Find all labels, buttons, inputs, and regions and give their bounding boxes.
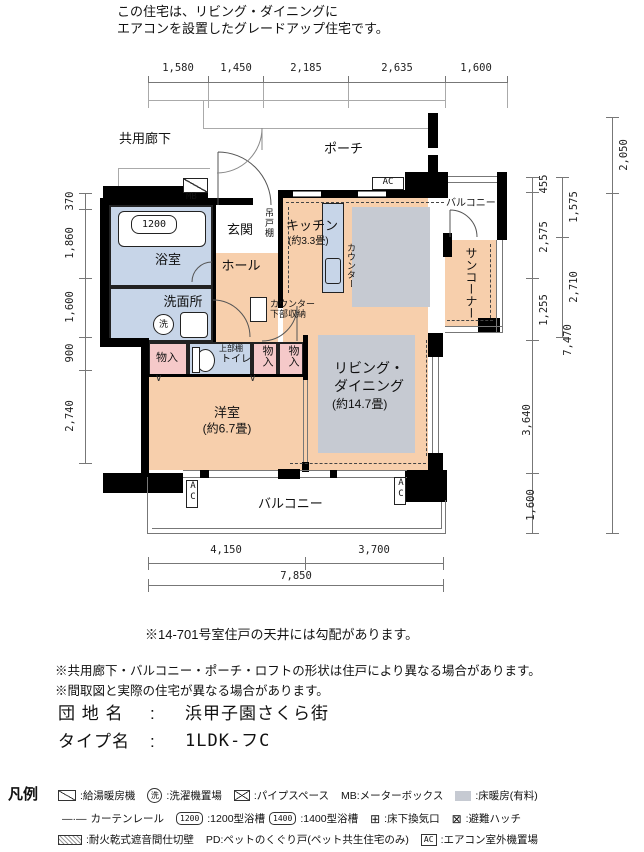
entrance-label: 玄関 (227, 222, 253, 238)
legend-row-3: :耐火乾式遮音間仕切壁 PD:ペットのくぐり戸(ペット共生住宅のみ) AC:エア… (58, 832, 538, 847)
balcony-rail (147, 533, 446, 534)
washer-place-icon: 洗 (147, 788, 162, 803)
western-size: (約6.7畳) (203, 422, 252, 437)
fold-mark: ∨ (249, 373, 256, 386)
closet1-label: 物入 (156, 352, 178, 366)
dim-right-mid-2: 7,470 (562, 324, 574, 356)
tick (606, 533, 619, 534)
legend-tub-1200: :1200型浴槽 (207, 811, 265, 826)
curtain-rail (490, 244, 491, 318)
dim-right-inner-2: 1,255 (538, 294, 550, 326)
meter-box (183, 178, 208, 193)
living-size: (約14.7畳) (332, 397, 387, 412)
partition-line (303, 380, 304, 466)
wall (497, 172, 507, 240)
wall (148, 374, 304, 377)
tub-1200-icon: 1200 (176, 812, 203, 825)
closet2-label: 物入 (259, 345, 275, 367)
ext-line (348, 83, 349, 108)
ext-line (263, 83, 264, 108)
ceiling-note: ※14-701号室住戸の天井には勾配があります。 (145, 624, 418, 643)
curtain-rail (447, 320, 493, 321)
balcony-rail (152, 528, 442, 529)
closet3-label: 物入 (285, 345, 301, 367)
curtain-rail (286, 202, 444, 203)
window-line (448, 176, 497, 177)
dim-line-bottom-1 (148, 563, 443, 564)
wall-gap (428, 148, 438, 155)
kitchen-sink (325, 258, 341, 284)
legend-row-2: —·—カーテンレール 1200:1200型浴槽 1400:1400型浴槽 ⊞:床… (62, 811, 521, 826)
counter-storage-box (250, 297, 267, 322)
ac-box-top: AC (372, 177, 404, 190)
ac-outdoor-icon: AC (421, 834, 437, 846)
legend-row-1: :給湯暖房機 洗:洗濯機置場 :パイプスペース MB:メーターボックス :床暖房… (58, 788, 538, 803)
note-line1: ※共用廊下・バルコニー・ポーチ・ロフトの形状は住戸により異なる場合があります。 (55, 660, 541, 679)
bathtub-size: 1200 (131, 215, 177, 234)
dim-left-3: 900 (64, 344, 76, 363)
vanity (180, 312, 208, 338)
dim-left-1: 1,860 (64, 227, 76, 259)
dim-right-inner-4: 1,600 (525, 489, 537, 521)
type-name-value: 1LDK-フC (185, 731, 270, 752)
tub-1400-icon: 1400 (269, 812, 296, 825)
note-line2: ※間取図と実際の住宅が異なる場合があります。 (55, 680, 329, 699)
window-mullion (330, 470, 337, 478)
ac-box-right: AC (394, 477, 406, 505)
dim-line-right-outer (612, 117, 613, 533)
corridor-outline (148, 100, 445, 101)
living-line1: リビング・ (334, 360, 404, 378)
window-line (445, 326, 503, 327)
window-line (432, 357, 433, 453)
ac-label: AC (395, 478, 405, 500)
floor-heating-panel-1 (352, 207, 430, 307)
wall (428, 333, 443, 357)
legend-washer: :洗濯機置場 (166, 788, 221, 803)
partition-line (307, 380, 308, 466)
legend-firewall: :耐火乾式遮音間仕切壁 (86, 832, 194, 847)
dim-right-inner-3: 3,640 (521, 404, 533, 436)
ac-box-left: AC (186, 480, 198, 508)
dim-bottom-0: 4,150 (210, 544, 242, 556)
dim-top-4: 1,600 (460, 62, 492, 74)
wall (103, 473, 183, 493)
dim-line-left (85, 193, 86, 463)
washer-icon: 洗 (153, 314, 174, 335)
estate-name-label: 団 地 名 (58, 703, 123, 724)
ext-line (148, 83, 149, 108)
hall-label: ホール (221, 258, 260, 274)
curtain-rail (426, 340, 427, 456)
tick (556, 237, 569, 238)
tick (79, 463, 92, 464)
escape-hatch-icon: ⊠ (452, 812, 462, 826)
legend-pd: PD:ペットのくぐり戸(ペット共生住宅のみ) (206, 832, 409, 847)
window-line (496, 240, 497, 332)
dim-right-outer-0: 2,050 (618, 139, 630, 171)
balcony-bottom-label: バルコニー (258, 496, 323, 512)
wall (141, 342, 149, 476)
legend-vent: :床下換気口 (384, 811, 439, 826)
pipe-space-icon (234, 790, 250, 801)
toilet-tank (192, 347, 200, 373)
tick (443, 579, 444, 592)
legend-hatch: :避難ハッチ (466, 811, 521, 826)
dim-top-3: 2,635 (381, 62, 413, 74)
legend-curtain-rail: カーテンレール (91, 811, 165, 826)
hanging-cabinet-label: 吊戸棚 (263, 208, 276, 238)
curtain-rail (290, 463, 426, 464)
dim-line-bottom-2 (148, 585, 443, 586)
window-mullion (278, 469, 300, 479)
kitchen-label: キッチン (286, 218, 338, 234)
ext-line (445, 83, 446, 108)
western-label: 洋室 (214, 405, 240, 421)
wall (213, 205, 216, 342)
washroom-label: 洗面所 (163, 294, 202, 310)
balcony-rail (445, 500, 446, 534)
bathroom-label: 浴室 (155, 252, 181, 268)
wall (428, 113, 438, 175)
estate-name-sep: : (150, 703, 156, 724)
tick (148, 579, 149, 592)
underfloor-vent-icon: ⊞ (370, 812, 380, 826)
window-line (438, 357, 439, 453)
corridor-edge (118, 168, 210, 169)
floor-heating-icon (455, 791, 471, 801)
dim-top-1: 1,450 (220, 62, 252, 74)
window-line (448, 182, 497, 183)
wall (208, 198, 253, 205)
tick (526, 340, 539, 341)
window-line (445, 332, 503, 333)
tick (79, 370, 92, 371)
balcony-rail (147, 477, 148, 534)
legend-mb: MB:メーターボックス (341, 788, 443, 803)
type-name-sep: : (150, 731, 156, 752)
corridor-label: 共用廊下 (119, 131, 171, 147)
header-line2: エアコンを設置したグレードアップ住宅です。 (117, 21, 389, 37)
dim-right-inner-1: 2,575 (538, 221, 550, 253)
estate-name-value: 浜甲子園さくら街 (185, 703, 329, 724)
legend-tub-1400: :1400型浴槽 (300, 811, 358, 826)
tick (526, 278, 539, 279)
dim-bottom-1: 3,700 (358, 544, 390, 556)
dim-bottom-total: 7,850 (280, 570, 312, 582)
tick (606, 117, 619, 118)
kitchen-size: (約3.3畳) (288, 236, 329, 249)
balcony-upper-label: バルコニー (446, 198, 496, 211)
fold-mark: ∨ (155, 373, 162, 386)
toilet-shelf-label: 上部棚 (219, 344, 243, 354)
kitchen-window (358, 191, 386, 197)
firewall-icon (58, 835, 82, 845)
floorplan-page: この住宅は、リビング・ダイニングに エアコンを設置したグレードアップ住宅です。 … (0, 0, 644, 852)
tick (148, 557, 149, 570)
dim-line-right-mid (562, 177, 563, 337)
dim-right-inner-0: 455 (538, 175, 550, 194)
wall (278, 198, 283, 308)
mb-label: MB (186, 192, 197, 203)
dim-top-0: 1,580 (162, 62, 194, 74)
dim-left-2: 1,600 (64, 291, 76, 323)
tick (79, 278, 92, 279)
wall (100, 198, 109, 342)
legend-pipe-space: :パイプスペース (254, 788, 329, 803)
ac-label: AC (187, 481, 197, 503)
wall (405, 172, 448, 192)
porch-label: ポーチ (324, 141, 363, 157)
tick (443, 557, 444, 570)
sun-corner-label: サンコーナー (463, 247, 480, 319)
dim-right-mid-1: 2,710 (568, 271, 580, 303)
corridor-edge (118, 168, 119, 186)
header-line1: この住宅は、リビング・ダイニングに (117, 4, 338, 20)
wall (303, 335, 308, 380)
counter-storage-label: カウンター下部収納 (270, 299, 318, 320)
legend-floor-heating: :床暖房(有料) (475, 788, 537, 803)
porch-outline-left (203, 100, 204, 128)
balcony-rail (441, 502, 442, 529)
dim-top-2: 2,185 (290, 62, 322, 74)
dim-line-right-inner (532, 177, 533, 533)
legend-ac: :エアコン室外機置場 (441, 832, 538, 847)
dim-left-0: 370 (64, 192, 76, 211)
tick (79, 209, 92, 210)
type-name-label: タイプ名 (58, 731, 130, 752)
wall (405, 470, 447, 502)
kitchen-window (293, 191, 321, 197)
porch-outline-top (203, 128, 429, 129)
wall (443, 233, 452, 257)
window-line (502, 240, 503, 332)
tick (79, 193, 92, 194)
toilet-label: トイレ (221, 354, 251, 367)
counter-label: カウンター (345, 243, 358, 288)
water-heater-icon (58, 790, 76, 801)
living-line2: ダイニング (334, 378, 404, 396)
ext-line (208, 83, 209, 108)
dim-line-top (148, 82, 507, 83)
tick (526, 533, 539, 534)
tick (79, 337, 92, 338)
tick (606, 193, 619, 194)
curtain-rail-icon: —·— (62, 813, 87, 825)
dim-right-mid-0: 1,575 (568, 191, 580, 223)
legend-water-heater: :給湯暖房機 (80, 788, 135, 803)
tick (305, 557, 306, 570)
legend-title: 凡例 (8, 786, 38, 805)
window-mullion (200, 470, 209, 478)
dim-left-4: 2,740 (64, 400, 76, 432)
tick (526, 473, 539, 474)
ext-line (507, 83, 508, 108)
tick (556, 177, 569, 178)
